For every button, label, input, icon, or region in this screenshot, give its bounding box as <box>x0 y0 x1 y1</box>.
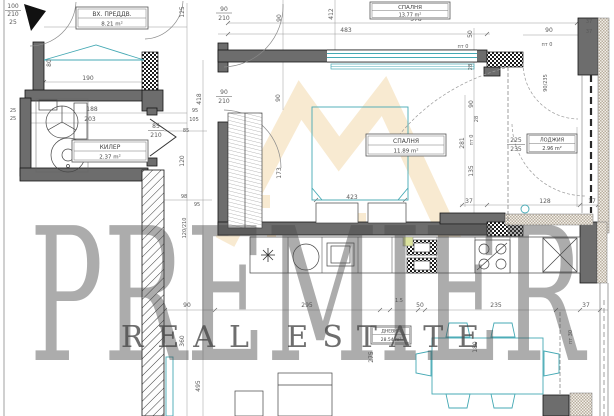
floor-plan-page: 100 210 25 320 190 80 125 90 210 90 412 … <box>0 0 614 416</box>
door-jamb <box>147 158 157 166</box>
level-label: пт 0 <box>542 42 553 48</box>
svg-text:13.77 m²: 13.77 m² <box>399 13 422 19</box>
watermark-tagline: REAL ESTATE <box>121 320 493 355</box>
room-label-bedroom-top: СПАЛНЯ 13.77 m² <box>370 2 450 19</box>
dim: 483 <box>340 27 352 34</box>
watermark-brand: PREMIER <box>30 188 588 404</box>
level-label: пт 0 <box>458 44 469 50</box>
dim: 105 <box>189 117 199 123</box>
wall-closet-left <box>20 98 31 176</box>
dim-door: 90 <box>220 6 228 13</box>
dim-entry-door-h: 210 <box>7 11 19 18</box>
svg-text:КИЛЕР: КИЛЕР <box>100 144 121 151</box>
dim: 125 <box>179 6 186 18</box>
dim-door: 90 <box>220 89 228 96</box>
svg-text:8.21 m²: 8.21 m² <box>101 21 123 28</box>
dim: 418 <box>196 93 203 105</box>
room-label-closet: КИЛЕР 2.37 m² <box>72 140 148 162</box>
level-label: пт 0 <box>469 135 475 146</box>
dim: 25 <box>9 19 17 26</box>
dim: 28 <box>468 64 474 70</box>
dim: 80 <box>46 59 53 67</box>
dim-door: 225 <box>510 137 522 144</box>
dim: 173 <box>276 167 283 179</box>
dim: 90 <box>276 14 283 22</box>
room-label-bedroom: СПАЛНЯ 11.89 m² <box>366 134 446 156</box>
dim: 281 <box>459 137 466 149</box>
dim: 203 <box>84 116 96 123</box>
svg-text:11.89 m²: 11.89 m² <box>393 148 418 155</box>
door-jamb <box>147 108 157 115</box>
watermark: PREMIER REAL ESTATE <box>30 188 588 404</box>
wall-block-hall <box>142 52 158 90</box>
dim: 85 <box>183 128 189 134</box>
dim: 90 <box>468 100 475 108</box>
dim: 90 <box>275 94 282 102</box>
dim-door: 210 <box>150 132 162 139</box>
svg-text:СПАЛНЯ: СПАЛНЯ <box>398 5 422 11</box>
dim: 50 <box>467 30 474 38</box>
svg-text:ЛОДЖИЯ: ЛОДЖИЯ <box>540 138 564 144</box>
dim: 25 <box>10 108 16 114</box>
svg-text:ВХ. ПРЕДДВ.: ВХ. ПРЕДДВ. <box>92 11 131 18</box>
dim: 135 <box>468 165 475 177</box>
wall-step <box>484 67 500 76</box>
dim: 28 <box>474 116 480 122</box>
dim: 188 <box>86 106 98 113</box>
wall-block-top-right <box>487 52 523 67</box>
dim: 95 <box>192 108 198 114</box>
dim: 17 <box>588 198 596 205</box>
wall-right-top <box>578 18 598 75</box>
dim: 37 <box>586 19 592 25</box>
dim-door: 235 <box>510 146 522 153</box>
dim: 90 <box>545 27 553 34</box>
dim: 190 <box>82 75 94 82</box>
dim: 120 <box>179 155 186 167</box>
room-label-loggia: ЛОДЖИЯ 2.96 m² <box>527 134 577 153</box>
wall-hall-bottom <box>25 90 147 101</box>
floor-plan-image: 100 210 25 320 190 80 125 90 210 90 412 … <box>0 0 614 416</box>
dim-door: 210 <box>218 98 230 105</box>
dim: 37 <box>586 29 592 35</box>
room-label-entry: ВХ. ПРЕДДВ. 8.21 m² <box>76 7 148 29</box>
svg-text:СПАЛНЯ: СПАЛНЯ <box>393 138 419 145</box>
svg-text:2.96 m²: 2.96 m² <box>542 146 562 152</box>
dim-door: 85 <box>152 123 160 130</box>
dim: 25 <box>10 116 16 122</box>
dim-door: 210 <box>218 15 230 22</box>
dim: 412 <box>328 8 335 20</box>
dim-entry-door-w: 100 <box>7 3 19 10</box>
dim-door: 90/235 <box>543 74 549 92</box>
wall-closet-bottom <box>20 168 148 181</box>
svg-text:2.37 m²: 2.37 m² <box>99 154 121 161</box>
